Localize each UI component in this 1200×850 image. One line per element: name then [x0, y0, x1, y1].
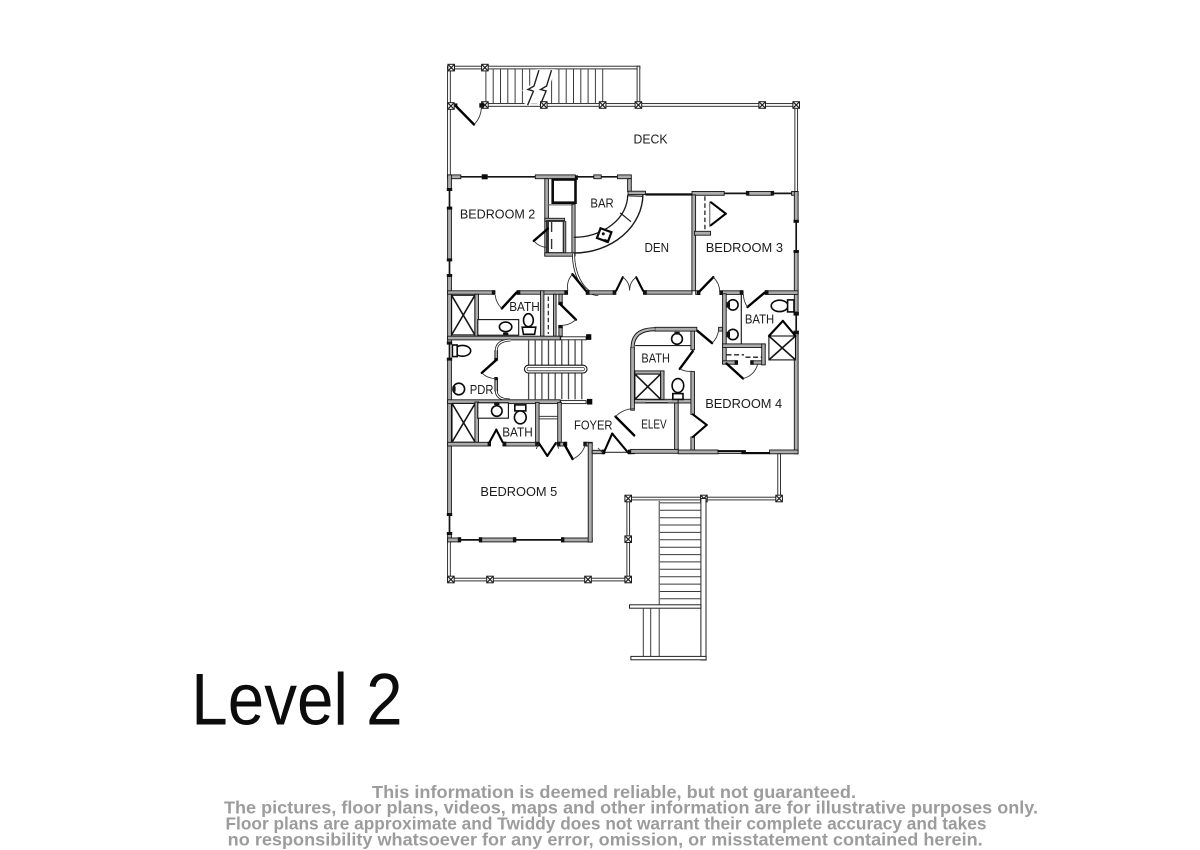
- svg-text:BATH: BATH: [745, 312, 774, 327]
- svg-text:BATH: BATH: [509, 299, 540, 314]
- svg-text:FOYER: FOYER: [574, 418, 613, 433]
- svg-text:BAR: BAR: [590, 196, 613, 211]
- svg-text:PDR: PDR: [470, 382, 494, 397]
- svg-text:BATH: BATH: [502, 425, 533, 440]
- svg-text:BEDROOM 2: BEDROOM 2: [460, 206, 535, 221]
- svg-text:BEDROOM 5: BEDROOM 5: [480, 484, 557, 499]
- svg-text:BEDROOM 3: BEDROOM 3: [706, 240, 783, 255]
- svg-text:BEDROOM 4: BEDROOM 4: [705, 396, 782, 411]
- svg-text:DECK: DECK: [634, 132, 668, 147]
- svg-text:no responsibility whatsoever f: no responsibility whatsoever for any err…: [228, 830, 983, 850]
- svg-text:ELEV: ELEV: [641, 416, 667, 431]
- svg-text:Level 2: Level 2: [191, 658, 402, 740]
- svg-text:BATH: BATH: [641, 351, 670, 366]
- svg-text:DEN: DEN: [645, 240, 670, 255]
